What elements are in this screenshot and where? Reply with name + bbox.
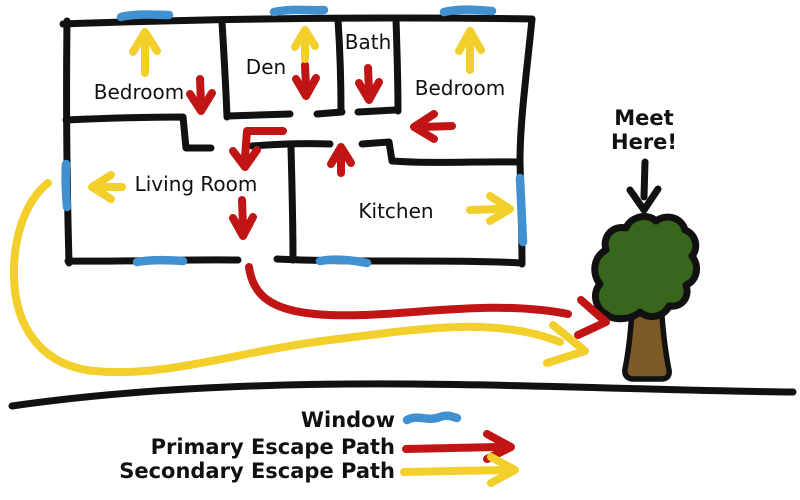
meet-here-label: Meet Here!	[611, 106, 677, 154]
primary-arrow-bath-down	[359, 68, 379, 100]
meet-here-arrow	[630, 162, 658, 210]
primary-arrow-bedroom-right-left	[414, 114, 452, 139]
window-mark	[121, 15, 169, 18]
legend-window-sample	[407, 416, 457, 420]
wall-den-bath-bottom	[317, 112, 342, 114]
tree-canopy	[595, 217, 697, 319]
escape-plan-diagram: Bedroom Den Bath Bedroom Living Room Kit…	[0, 0, 800, 500]
legend-label-secondary: Secondary Escape Path	[119, 459, 395, 483]
room-label-bedroom-left: Bedroom	[94, 80, 184, 104]
wall-den-bottom	[228, 114, 290, 116]
room-label-living-room: Living Room	[135, 172, 258, 196]
legend-secondary-sample	[404, 457, 515, 483]
window-mark	[520, 178, 523, 242]
secondary-arrow-den-up	[295, 30, 315, 59]
secondary-arrow-bedroom-left-up	[133, 32, 157, 73]
window-mark	[66, 164, 67, 207]
legend-label-primary: Primary Escape Path	[151, 435, 395, 459]
primary-arrow-hallway-elbow	[233, 131, 283, 167]
wall-living-top	[252, 144, 330, 146]
wall-bedroom-left-bottom	[66, 117, 211, 148]
secondary-arrow-bedroom-right-up	[459, 31, 481, 70]
wall-bath-bottom	[358, 110, 395, 112]
primary-arrow-den-down	[296, 65, 316, 96]
primary-arrow-living-room-down	[233, 200, 253, 236]
ground-line	[12, 384, 793, 406]
wall-left	[67, 21, 69, 263]
wall-living-kitchen	[291, 147, 293, 260]
window-mark	[274, 10, 324, 12]
primary-arrow-kitchen-up	[331, 147, 351, 173]
window-mark	[444, 10, 492, 12]
secondary-arrow-living-room-left	[92, 175, 122, 199]
wall-den-bath	[338, 20, 341, 112]
room-label-bath: Bath	[345, 30, 392, 54]
meet-here-line2: Here!	[611, 130, 677, 154]
secondary-arrow-kitchen-right	[470, 196, 510, 221]
legend-samples	[404, 416, 515, 483]
wall-kitchen-top	[362, 142, 520, 162]
wall-bath-bedroom	[396, 19, 398, 111]
meet-here-line1: Meet	[611, 106, 677, 130]
tree-icon	[595, 217, 697, 379]
wall-bedroom-den	[222, 22, 227, 117]
window-mark	[137, 260, 183, 262]
window-mark	[320, 260, 367, 263]
room-label-kitchen: Kitchen	[358, 199, 433, 223]
wall-bottom-right	[277, 259, 521, 263]
legend-label-window: Window	[301, 408, 395, 432]
room-label-den: Den	[246, 55, 286, 79]
room-label-bedroom-right: Bedroom	[415, 76, 505, 100]
plan-drawing	[0, 0, 800, 500]
primary-arrow-bedroom-left-down	[190, 79, 212, 111]
